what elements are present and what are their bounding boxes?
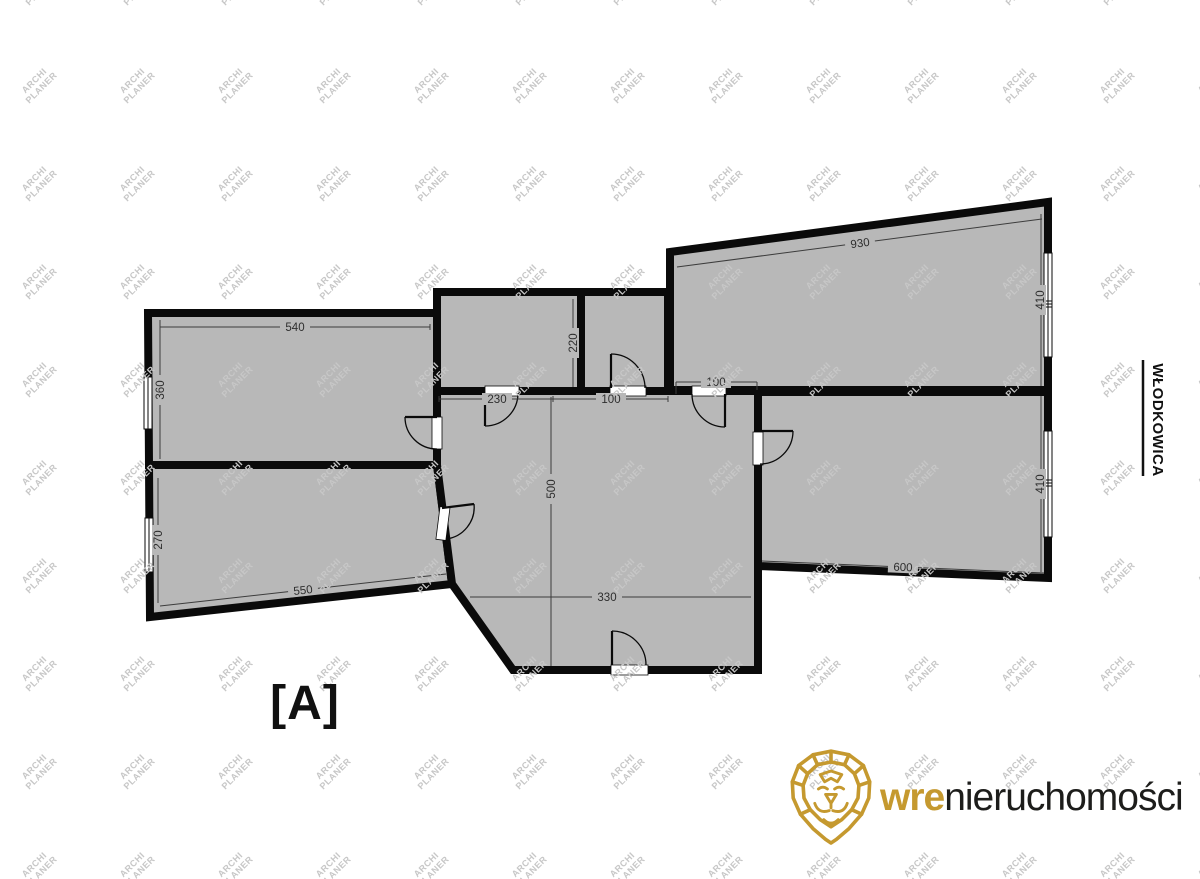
room-top-right [670, 202, 1048, 390]
dim-500: 500 [546, 479, 558, 498]
floor-plan-page: 540 360 270 550 230 220 [0, 0, 1200, 879]
dim-230: 230 [487, 394, 506, 406]
dim-270: 270 [153, 530, 165, 549]
dim-550: 550 [293, 584, 313, 598]
door-gap-top-left-room [432, 417, 442, 449]
dim-410-top: 410 [1035, 290, 1047, 309]
dim-540: 540 [285, 322, 304, 334]
room-bottom-right [758, 392, 1048, 578]
dim-100-top-right-door: 100 [706, 377, 725, 389]
agency-logo: wrenieruchomości [786, 742, 1183, 854]
dim-360: 360 [155, 380, 167, 399]
dim-600: 600 [893, 562, 913, 575]
door-gap-entrance [611, 665, 648, 675]
plan-variant-label: [A] [250, 676, 360, 731]
dim-410-bottom: 410 [1035, 474, 1047, 493]
window-bottom-left [145, 518, 153, 572]
dim-930: 930 [850, 237, 871, 251]
window-top-left [144, 377, 152, 429]
dim-100-small-room: 100 [601, 394, 620, 406]
brand-text: wrenieruchomości [880, 776, 1183, 820]
hallway [437, 391, 758, 670]
dim-220: 220 [568, 333, 580, 352]
dim-330: 330 [597, 592, 616, 604]
lion-icon [786, 746, 876, 850]
door-gap-bottom-right-room [753, 432, 763, 465]
brand-text-wre: wre [880, 776, 944, 819]
room-top-center-left [437, 292, 581, 391]
room-top-left [148, 313, 437, 465]
brand-text-nieruchomosci: nieruchomości [944, 776, 1182, 819]
room-top-center-right [581, 292, 668, 391]
